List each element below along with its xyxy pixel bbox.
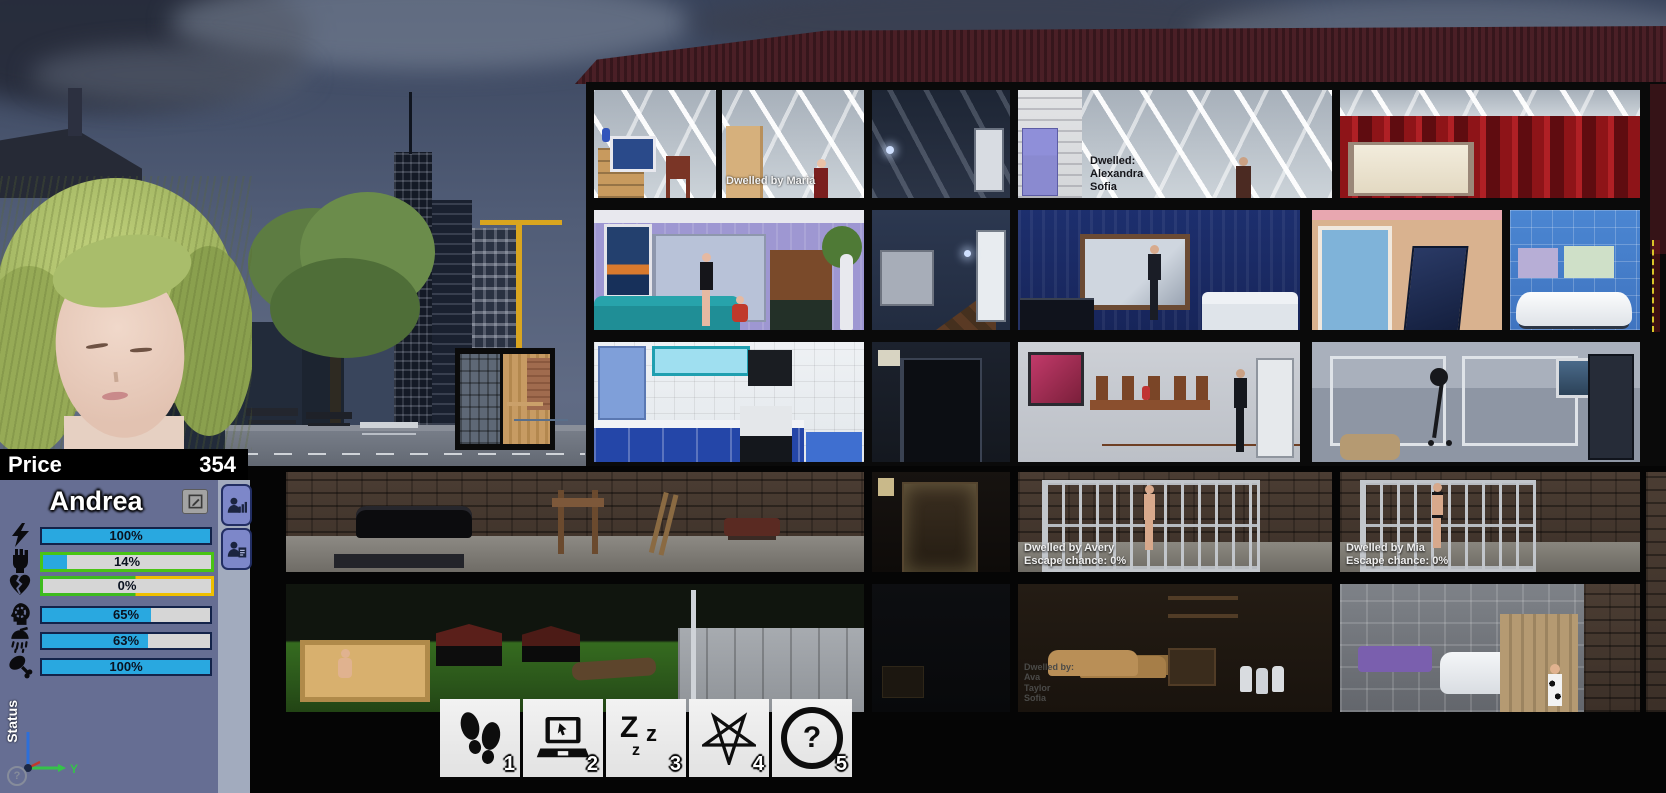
purple-cabinet — [1022, 128, 1058, 196]
dog-house — [522, 626, 580, 662]
door-sign — [878, 478, 894, 496]
stat-value: 63% — [42, 634, 210, 648]
crate — [882, 666, 924, 698]
lightning-icon — [7, 522, 35, 550]
pencil-icon — [188, 494, 203, 509]
chimney — [68, 88, 82, 136]
room-cellar-door[interactable] — [872, 472, 1010, 572]
room-bedroom-blue[interactable] — [1018, 210, 1300, 330]
crane-arm — [480, 220, 562, 225]
painting — [610, 136, 656, 172]
bright-window — [1348, 142, 1474, 196]
sleep-button[interactable]: Z z z 3 — [606, 699, 686, 777]
person-chart-icon — [227, 495, 247, 515]
right-edge-marker — [1652, 240, 1660, 332]
tower-antenna — [409, 92, 412, 154]
room-studio[interactable] — [1312, 342, 1640, 462]
character-portrait — [0, 176, 252, 450]
panel-side-strip — [218, 480, 250, 793]
room-attic-alexandra[interactable]: Dwelled: Alexandra Sofia — [1018, 90, 1332, 198]
pentagram-icon — [702, 711, 756, 765]
room-attic-maria[interactable]: Dwelled by Maria — [722, 90, 864, 198]
doorway-blue — [1318, 226, 1392, 330]
stat-affection: 0% — [0, 576, 218, 594]
stat-bar: 100% — [40, 527, 212, 545]
wall-lamp — [964, 250, 971, 257]
question-icon: ? — [781, 707, 843, 769]
black-tub — [356, 506, 472, 538]
axis-y-label: Y — [70, 762, 78, 776]
laptop-icon — [535, 713, 591, 763]
cellar-door — [902, 482, 978, 572]
kitchen-cabinet-low — [806, 432, 862, 462]
broken-heart-icon — [7, 571, 35, 599]
lane-line — [240, 453, 585, 455]
wall-panel-green — [1564, 246, 1614, 278]
vase — [602, 128, 610, 142]
edit-name-button[interactable] — [182, 489, 208, 514]
shower-icon — [7, 627, 35, 655]
chairs — [1096, 376, 1108, 400]
captive-figure — [1432, 492, 1443, 518]
chair — [666, 156, 690, 198]
game-scene: Dwelled by Maria Dwelled: Alexandra Sofi… — [0, 0, 1666, 793]
basement-right-wall — [1646, 472, 1666, 712]
room-dining[interactable] — [1018, 342, 1300, 462]
room-basement-bath[interactable] — [1340, 584, 1640, 712]
help-hint-icon[interactable]: ? — [7, 766, 27, 786]
kitchen-window — [652, 346, 750, 376]
bed-teal — [594, 296, 740, 330]
ritual-button[interactable]: 4 — [689, 699, 769, 777]
cooker-hood — [748, 350, 792, 386]
room-dungeon[interactable] — [286, 472, 864, 572]
stats-button[interactable] — [221, 484, 252, 526]
stat-value: 100% — [42, 529, 210, 543]
price-label: Price — [8, 452, 62, 478]
help-button[interactable]: ? 5 — [772, 699, 852, 777]
hotkey-label: 5 — [836, 753, 847, 776]
profile-button[interactable] — [221, 528, 252, 570]
room-label-mia: Dwelled by Mia Escape chance: 0% — [1346, 542, 1448, 568]
stat-bar: 100% — [40, 658, 212, 676]
figure — [1236, 166, 1251, 198]
walk-button[interactable]: 1 — [440, 699, 520, 777]
door — [974, 128, 1004, 192]
hotkey-label: 3 — [670, 753, 681, 776]
stat-food: 100% — [0, 658, 218, 676]
annex-fence-room[interactable] — [460, 354, 500, 444]
black-dresser — [1020, 298, 1094, 330]
room-kitchen[interactable] — [594, 342, 864, 462]
kitchen-cabinet-tall — [598, 346, 646, 420]
room-storage[interactable]: Dwelled by: Ava Taylor Sofia — [1018, 584, 1332, 712]
figure — [1234, 378, 1247, 408]
attic-truss-band — [1340, 90, 1640, 116]
pink-painting — [1028, 352, 1084, 406]
stat-obedience: 14% — [0, 552, 218, 570]
tree-canopy — [270, 258, 420, 358]
figure-cowprint — [1548, 674, 1562, 706]
sauna-table — [507, 402, 543, 406]
floor-mat — [334, 554, 464, 568]
bed-white — [1202, 292, 1298, 330]
figure — [700, 262, 713, 290]
character-name: Andrea — [0, 486, 192, 517]
roof-edge-sliver — [1650, 84, 1666, 254]
room-label-avery: Dwelled by Avery Escape chance: 0% — [1024, 542, 1126, 568]
room-stairwell[interactable] — [872, 210, 1010, 330]
stat-energy: 100% — [0, 527, 218, 545]
log — [571, 657, 656, 681]
stat-psyche: 65% — [0, 606, 218, 624]
room-dark-storage[interactable] — [872, 584, 1010, 712]
ottoman — [1340, 434, 1400, 460]
drumstick-icon — [7, 653, 35, 681]
pole — [691, 590, 696, 712]
hotkey-label: 4 — [753, 753, 764, 776]
dark-door — [1588, 354, 1634, 460]
double-doors — [900, 358, 982, 462]
crate — [1168, 648, 1216, 686]
brick-section — [1584, 584, 1640, 712]
wall-molding — [1330, 356, 1446, 446]
fireplace — [770, 250, 832, 330]
room-label-maria: Dwelled by Maria — [726, 175, 815, 188]
room-attic-dark[interactable] — [872, 90, 1010, 198]
dining-table — [1090, 400, 1210, 410]
purple-mat — [1358, 646, 1432, 672]
room-cage-avery[interactable]: Dwelled by Avery Escape chance: 0% — [1018, 472, 1332, 572]
milk-jugs — [1240, 666, 1252, 692]
doorway-white — [1256, 358, 1294, 458]
footsteps-icon — [455, 711, 505, 765]
room-attic-red[interactable] — [1340, 90, 1640, 198]
mind-gear-icon — [7, 601, 35, 629]
figure-sitting — [338, 658, 352, 678]
wood-fence — [1500, 614, 1578, 712]
room-label-storage: Dwelled by: Ava Taylor Sofia — [1024, 662, 1074, 704]
sandbox — [300, 640, 430, 702]
leopard-painting — [1080, 234, 1190, 310]
price-value: 354 — [199, 452, 236, 478]
figure-crouching — [732, 304, 748, 322]
wall-board — [880, 250, 934, 306]
stat-value: 65% — [42, 608, 210, 622]
action-toolbar: 1 2 Z z z 3 4 ? — [440, 699, 852, 777]
bench — [306, 412, 352, 419]
room-mirror[interactable] — [1312, 210, 1502, 330]
room-utility[interactable] — [872, 342, 1010, 462]
stat-value: 14% — [43, 555, 211, 569]
oven — [740, 406, 792, 462]
price-bar: Price 354 — [0, 449, 248, 480]
hotkey-label: 1 — [504, 753, 515, 776]
room-cage-mia[interactable]: Dwelled by Mia Escape chance: 0% — [1340, 472, 1640, 572]
statue — [840, 254, 853, 330]
dog-house — [436, 624, 502, 666]
bench-white — [360, 422, 418, 428]
hotkey-label: 2 — [587, 753, 598, 776]
small-sign — [878, 350, 900, 366]
stat-bar: 0% — [40, 576, 214, 596]
stat-bar: 65% — [40, 606, 212, 624]
standing-mirror — [1403, 246, 1468, 330]
wall-lamp — [886, 146, 894, 154]
person-card-icon — [227, 539, 247, 559]
crane-mast — [516, 222, 522, 352]
pillory-bar — [552, 498, 604, 507]
sleep-zzz-icon: Z z z — [620, 713, 672, 763]
room-attic-1[interactable] — [594, 90, 716, 198]
door-white — [976, 230, 1006, 322]
stat-bar: 63% — [40, 632, 212, 650]
captive-figure — [1144, 494, 1155, 520]
clawfoot-tub — [1516, 292, 1632, 326]
sunset-painting — [604, 224, 652, 298]
room-garden[interactable] — [286, 584, 864, 712]
shelf — [1168, 596, 1238, 600]
stat-bar: 14% — [40, 552, 214, 572]
room-bathroom[interactable] — [1510, 210, 1640, 330]
figure — [814, 168, 828, 198]
figure — [1148, 254, 1161, 280]
bench — [246, 408, 298, 416]
flower-vase — [1142, 386, 1150, 400]
wall-panel-lavender — [1518, 248, 1558, 278]
spanking-bench — [724, 518, 780, 536]
computer-button[interactable]: 2 — [523, 699, 603, 777]
stat-value: 0% — [43, 579, 211, 593]
stat-hygiene: 63% — [0, 632, 218, 650]
room-bedroom-purple[interactable] — [594, 210, 864, 330]
room-label-alexandra: Dwelled: Alexandra Sofia — [1090, 155, 1143, 194]
stat-value: 100% — [42, 660, 210, 674]
